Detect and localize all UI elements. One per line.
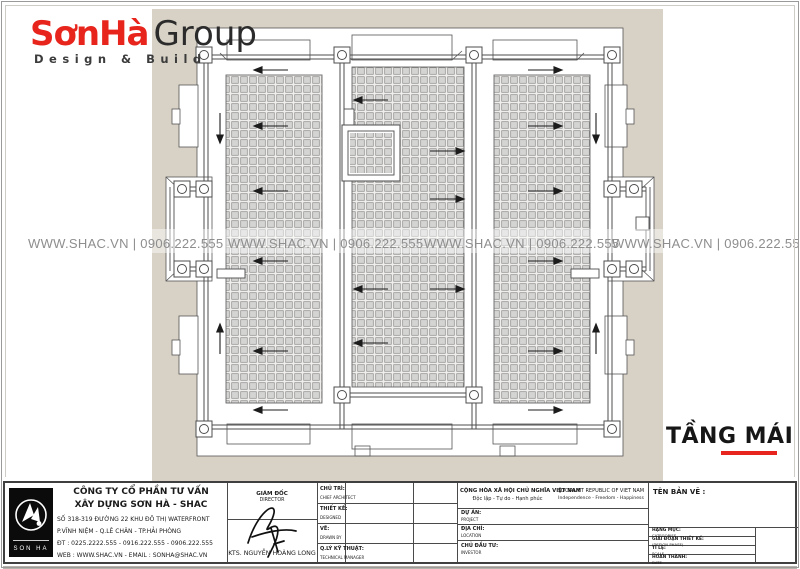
company-phone: ĐT : 0225.2222.555 - 0916.222.555 - 0906… xyxy=(57,540,213,547)
sonha-logo-icon: SON HA xyxy=(9,488,53,557)
role-en: DRAWN BY xyxy=(320,535,341,540)
drawing-title-underline xyxy=(721,451,777,455)
republic-en-line1: SOCIALIST REPUBLIC OF VIET NAM xyxy=(556,488,646,494)
logo-name-dark: Group xyxy=(153,14,257,54)
watermark: WWW.SHAC.VN | 0906.222.555 xyxy=(28,236,223,251)
watermark: WWW.SHAC.VN | 0906.222.555 xyxy=(612,236,800,251)
role-vn: THIẾT KẾ: xyxy=(320,506,347,512)
drawing-name-label: TÊN BẢN VẼ : xyxy=(653,488,705,496)
drawing-sheet: WWW.SHAC.VN | 0906.222.555 WWW.SHAC.VN |… xyxy=(0,0,800,569)
watermark: WWW.SHAC.VN | 0906.222.555 xyxy=(228,236,423,251)
logo-caption: SON HA xyxy=(13,546,48,552)
project-row-en: PROJECT xyxy=(461,517,478,522)
divider xyxy=(457,508,648,509)
role-en: TECHNICAL MANAGER xyxy=(320,555,364,560)
republic-en-line2: Independence - Freedom - Happiness xyxy=(556,496,646,501)
sonha-logo-box: SON HA xyxy=(9,488,53,557)
director-name: KTS. NGUYỄN HOÀNG LONG xyxy=(227,550,317,557)
project-row-vn: DỰ ÁN: xyxy=(461,510,481,516)
divider xyxy=(457,540,648,541)
republic-vn-line2: Độc lập - Tự do - Hạnh phúc xyxy=(460,496,555,502)
drawing-title: TẦNG MÁI xyxy=(666,424,793,449)
divider xyxy=(317,503,457,504)
project-row-en: INVESTOR xyxy=(461,550,481,555)
company-name-line1: CÔNG TY CỔ PHẦN TƯ VẤN xyxy=(57,487,225,497)
company-address-line1: SỐ 318-319 ĐƯỜNG 22 KHU ĐÔ THỊ WATERFRON… xyxy=(57,516,210,523)
title-block: SON HA CÔNG TY CỔ PHẦN TƯ VẤN XÂY DỰNG S… xyxy=(3,481,797,564)
role-vn: Q.LÝ KỸ THUẬT: xyxy=(320,546,364,552)
divider xyxy=(648,483,649,562)
company-address-line2: P.VĨNH NIỆM - Q.LÊ CHÂN - TP.HẢI PHÒNG xyxy=(57,528,181,535)
company-web-email: WEB : WWW.SHAC.VN - EMAIL : SONHA@SHAC.V… xyxy=(57,552,207,559)
logo-tagline: Design & Build xyxy=(34,52,257,66)
divider xyxy=(457,483,458,562)
meta-en: DATE xyxy=(652,560,662,565)
company-name-line2: XÂY DỰNG SƠN HÀ - SHAC xyxy=(57,500,225,510)
role-en: CHIEF ARCHITECT xyxy=(320,495,356,500)
watermark: WWW.SHAC.VN | 0906.222.555 xyxy=(424,236,619,251)
republic-vn-line1: CỘNG HÒA XÃ HỘI CHỦ NGHĨA VIỆT NAM xyxy=(460,488,555,494)
project-row-vn: CHỦ ĐẦU TƯ: xyxy=(461,543,498,549)
divider xyxy=(755,527,756,562)
divider xyxy=(317,543,457,544)
project-row-vn: ĐỊA CHỈ: xyxy=(461,526,484,532)
divider xyxy=(457,524,648,525)
project-row-en: LOCATION xyxy=(461,533,481,538)
role-vn: VẼ: xyxy=(320,526,329,532)
logo-name-red: SơnHà xyxy=(30,14,148,54)
divider xyxy=(317,523,457,524)
role-en: DESIGNED xyxy=(320,515,341,520)
sonha-group-logo: SơnHàGroup Design & Build xyxy=(30,14,257,66)
role-vn: CHỦ TRÌ: xyxy=(320,486,345,492)
